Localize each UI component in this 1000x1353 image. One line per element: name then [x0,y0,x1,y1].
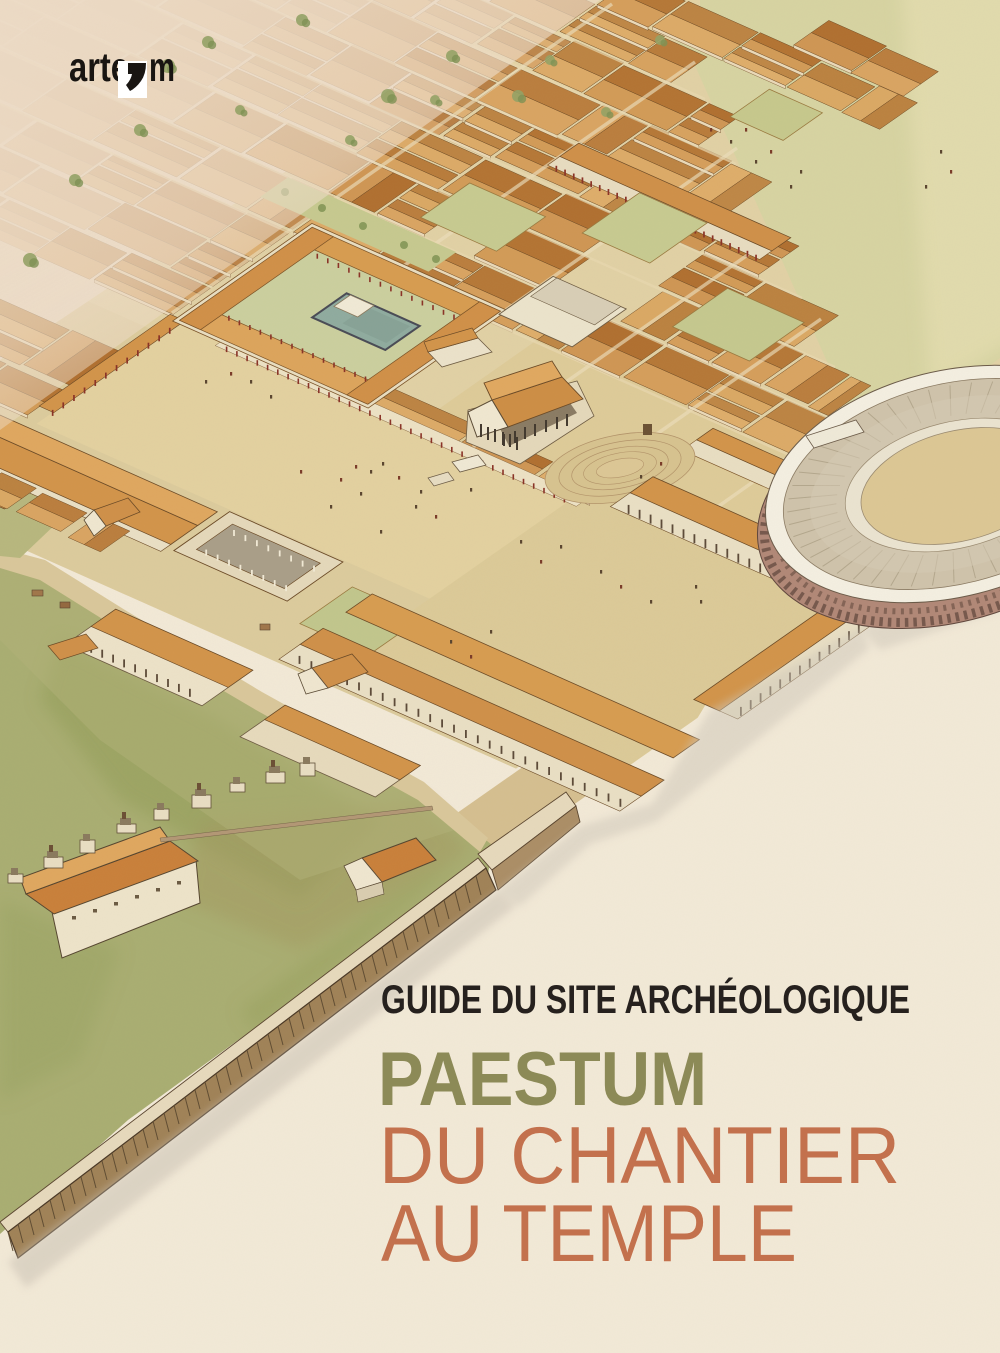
svg-text:m: m [149,44,175,90]
svg-text:AU TEMPLE: AU TEMPLE [381,1189,797,1279]
svg-text:PAESTUM: PAESTUM [378,1037,707,1122]
svg-text:DU CHANTIER: DU CHANTIER [379,1111,900,1201]
svg-text:GUIDE DU SITE ARCHÉOLOGIQUE: GUIDE DU SITE ARCHÉOLOGIQUE [381,977,910,1022]
